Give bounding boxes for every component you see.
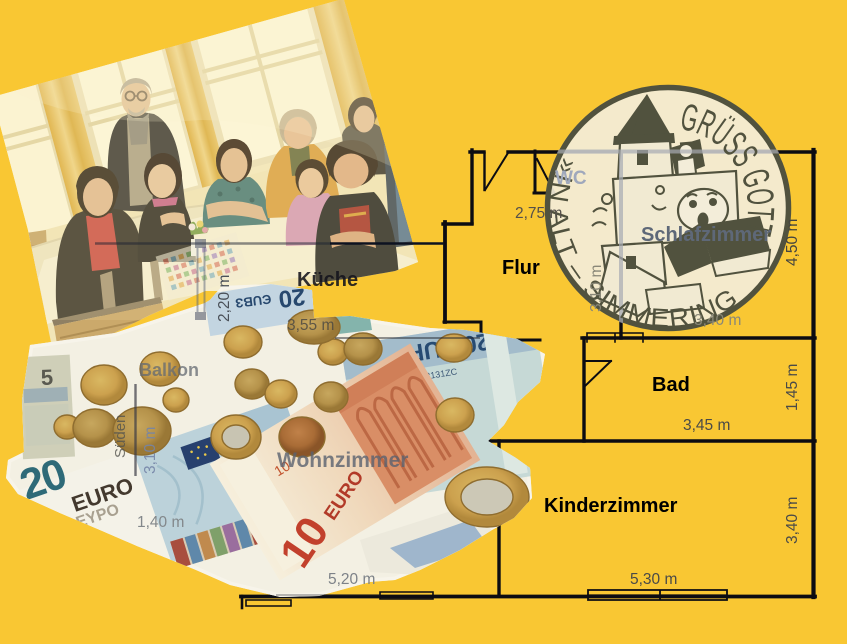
svg-text:Flur: Flur <box>502 257 540 279</box>
svg-text:3,40 m: 3,40 m <box>784 497 801 544</box>
svg-text:2,20 m: 2,20 m <box>216 275 233 322</box>
svg-text:3,45 m: 3,45 m <box>683 417 730 434</box>
svg-text:5,20 m: 5,20 m <box>328 571 375 588</box>
svg-text:Kinderzimmer: Kinderzimmer <box>544 495 678 517</box>
svg-text:Wohnzimmer: Wohnzimmer <box>277 449 408 472</box>
svg-text:1,40 m: 1,40 m <box>137 514 184 531</box>
svg-text:3,55 m: 3,55 m <box>287 317 334 334</box>
svg-text:Küche: Küche <box>297 269 358 291</box>
svg-text:1,45 m: 1,45 m <box>784 364 801 411</box>
svg-text:3,10 m: 3,10 m <box>588 265 605 312</box>
svg-text:3,10 m: 3,10 m <box>142 427 159 474</box>
svg-text:Schlafzimmer: Schlafzimmer <box>641 224 771 246</box>
svg-text:Bad: Bad <box>652 374 690 396</box>
svg-text:Balkon: Balkon <box>139 360 199 380</box>
svg-text:3,40 m: 3,40 m <box>694 312 741 329</box>
svg-text:5: 5 <box>40 365 54 391</box>
svg-text:4,50 m: 4,50 m <box>784 219 801 266</box>
svg-text:Süden: Süden <box>112 415 129 458</box>
svg-text:5,30 m: 5,30 m <box>630 571 677 588</box>
svg-text:2,75 m: 2,75 m <box>515 205 562 222</box>
svg-text:WC: WC <box>555 168 587 189</box>
